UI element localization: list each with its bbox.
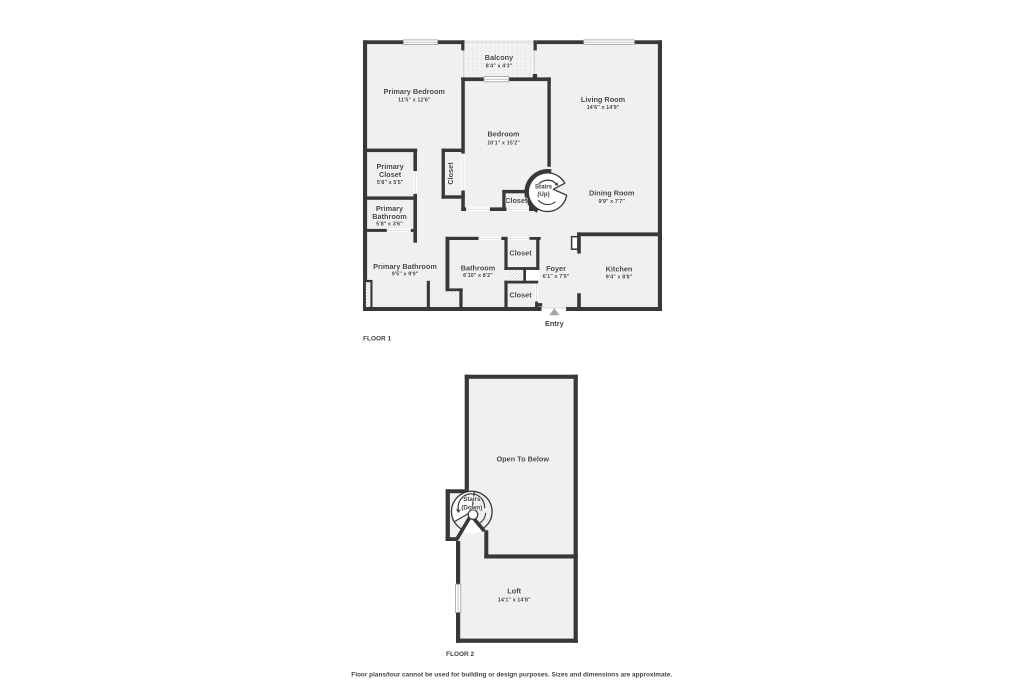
svg-text:Open To Below: Open To Below — [497, 455, 550, 464]
svg-text:Closet: Closet — [505, 196, 528, 205]
svg-text:Bathroom: Bathroom — [461, 264, 496, 273]
svg-text:Bathroom: Bathroom — [372, 212, 407, 221]
svg-text:Primary Bathroom: Primary Bathroom — [373, 262, 437, 271]
svg-text:Loft: Loft — [507, 587, 521, 596]
svg-text:Bedroom: Bedroom — [487, 130, 520, 139]
svg-text:5'8" x 3'6": 5'8" x 3'6" — [376, 222, 403, 228]
svg-text:11'5" x 12'6": 11'5" x 12'6" — [398, 97, 431, 103]
svg-text:FLOOR 1: FLOOR 1 — [363, 336, 392, 343]
svg-text:Stairs: Stairs — [463, 496, 481, 503]
svg-text:Balcony: Balcony — [485, 53, 514, 62]
svg-text:(Up): (Up) — [537, 191, 549, 198]
svg-text:8'4" x 4'3": 8'4" x 4'3" — [486, 64, 513, 70]
svg-text:9'4" x 8'8": 9'4" x 8'8" — [606, 275, 633, 281]
svg-text:9'9" x 7'7": 9'9" x 7'7" — [598, 199, 625, 205]
svg-text:Closet: Closet — [509, 291, 532, 300]
svg-text:(Down): (Down) — [461, 504, 482, 511]
svg-text:14'1" x 14'8": 14'1" x 14'8" — [498, 598, 531, 604]
svg-text:Primary Bedroom: Primary Bedroom — [384, 87, 446, 96]
svg-text:FLOOR 2: FLOOR 2 — [446, 651, 475, 658]
svg-text:9'5" x 9'9": 9'5" x 9'9" — [392, 272, 419, 278]
svg-text:14'6" x 14'9": 14'6" x 14'9" — [587, 105, 620, 111]
svg-text:6'10" x 8'2": 6'10" x 8'2" — [463, 273, 493, 279]
svg-text:Living Room: Living Room — [581, 95, 626, 104]
svg-text:Closet: Closet — [379, 170, 402, 179]
svg-text:5'8" x 5'5": 5'8" x 5'5" — [377, 180, 404, 186]
svg-text:Closet: Closet — [509, 249, 532, 258]
svg-text:6'1" x 7'9": 6'1" x 7'9" — [543, 274, 570, 280]
svg-text:Stairs: Stairs — [535, 183, 553, 190]
svg-text:Entry: Entry — [545, 319, 565, 328]
svg-text:Dining Room: Dining Room — [589, 189, 635, 198]
svg-text:Closet: Closet — [446, 162, 455, 185]
svg-text:Foyer: Foyer — [546, 264, 566, 273]
svg-text:Floor plans/tour cannot be use: Floor plans/tour cannot be used for buil… — [351, 672, 672, 679]
svg-text:10'1" x 15'2": 10'1" x 15'2" — [487, 140, 520, 146]
svg-text:Kitchen: Kitchen — [606, 265, 633, 274]
